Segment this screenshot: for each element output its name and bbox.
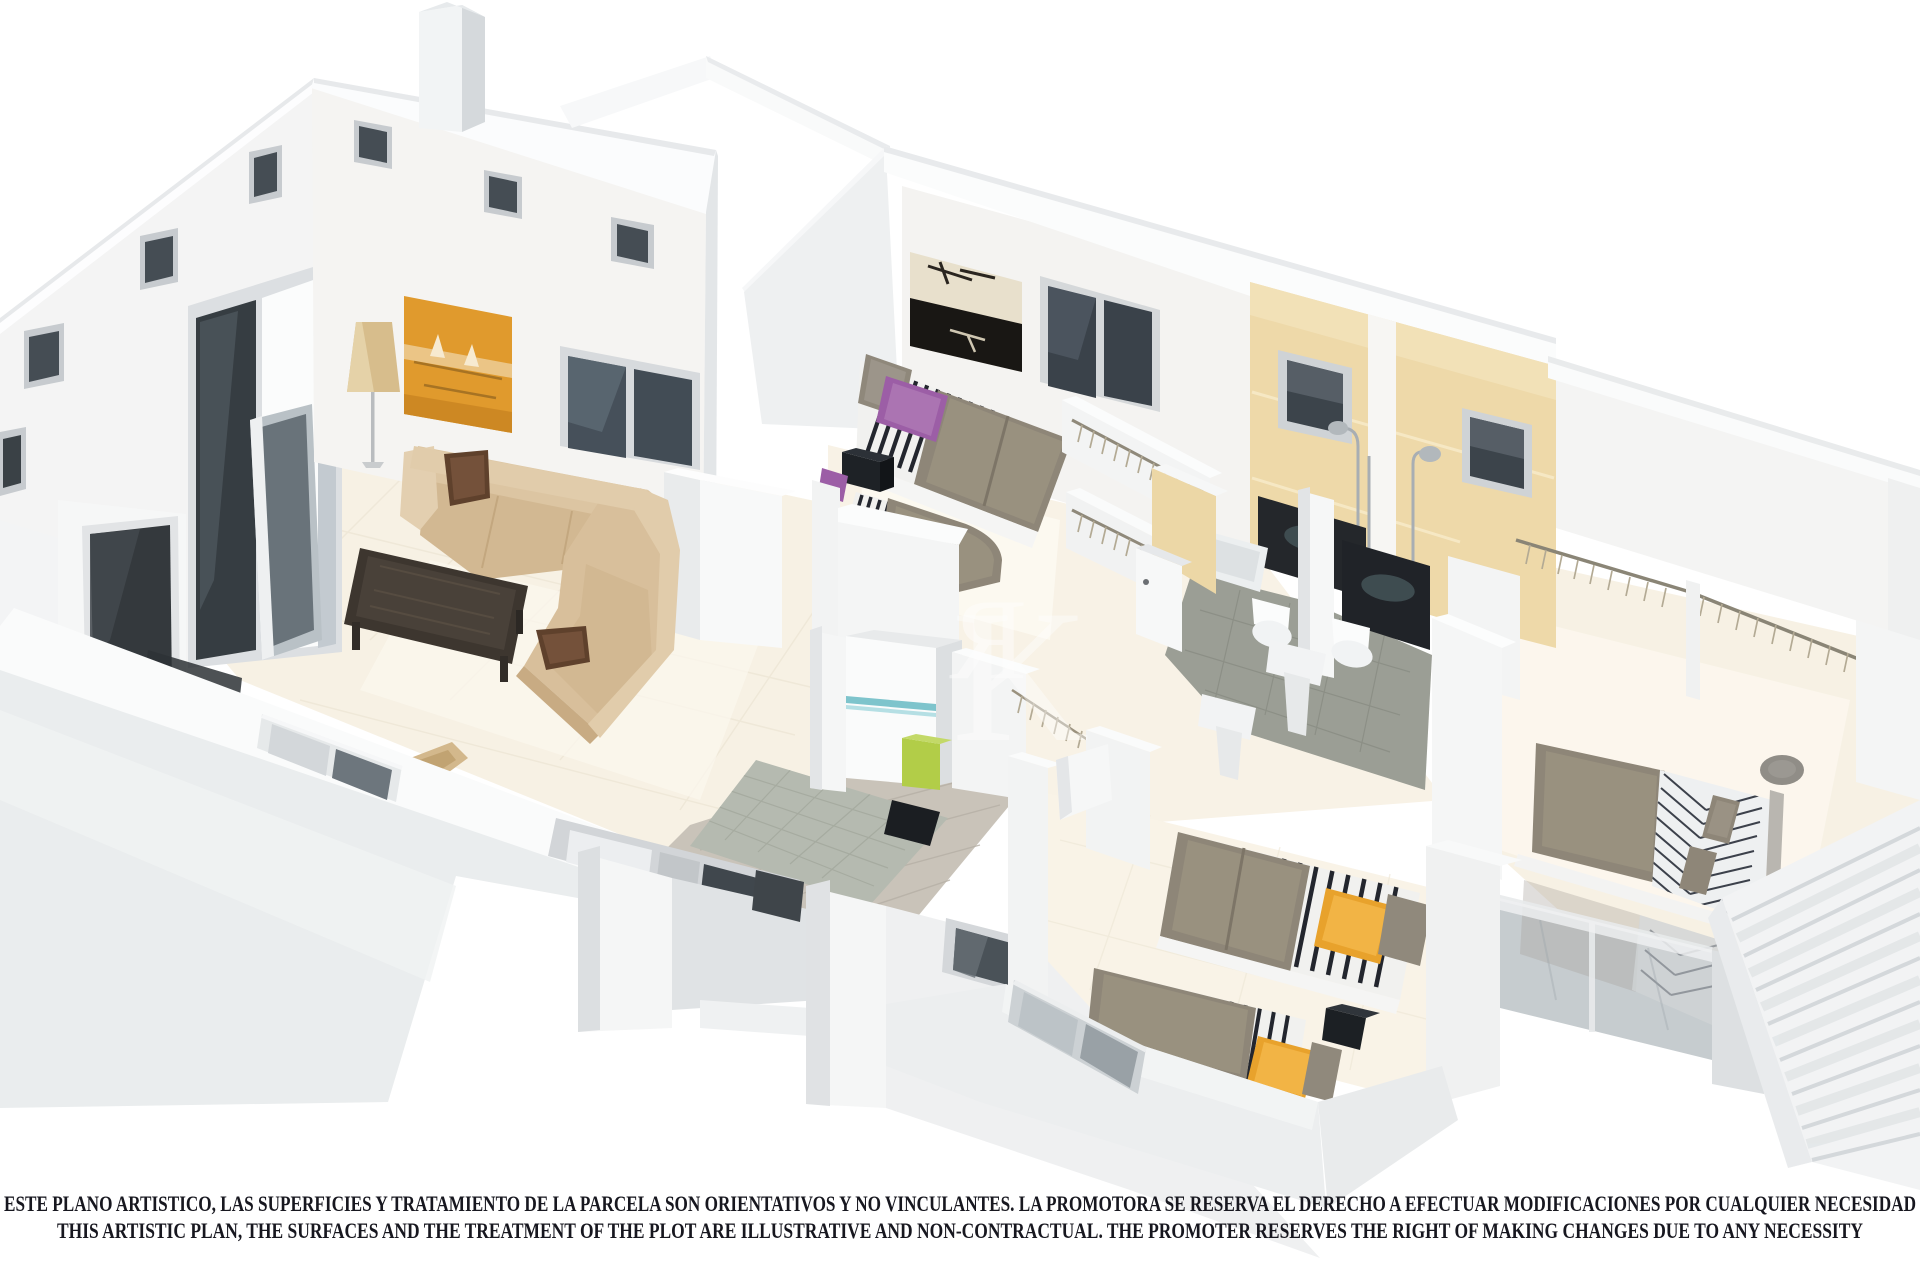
svg-text:K: K bbox=[952, 572, 1089, 782]
svg-text:THIS ARTISTIC PLAN, THE SURFAC: THIS ARTISTIC PLAN, THE SURFACES AND THE… bbox=[57, 1218, 1863, 1243]
svg-text:ESTE PLANO ARTISTICO, LAS SUPE: ESTE PLANO ARTISTICO, LAS SUPERFICIES Y … bbox=[4, 1191, 1916, 1216]
